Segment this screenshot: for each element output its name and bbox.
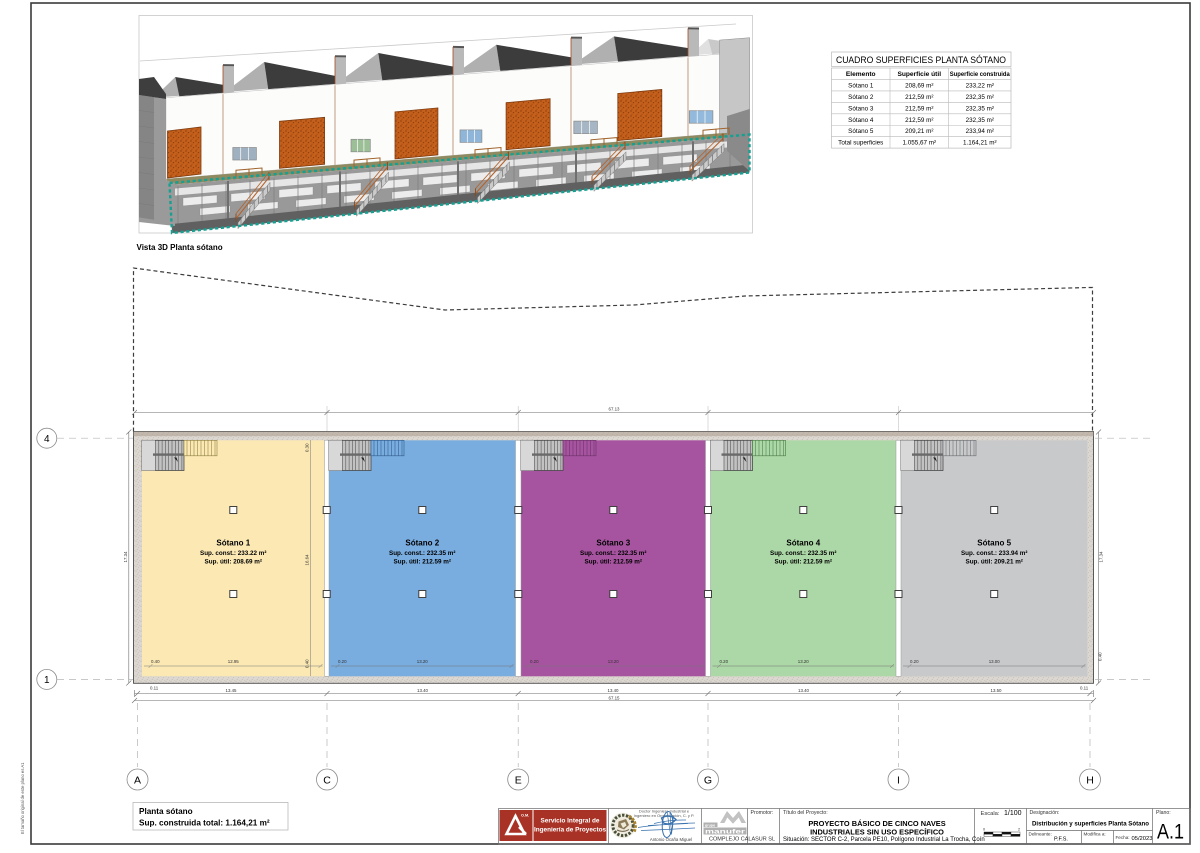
svg-text:Sup. const.: 232.35 m²: Sup. const.: 232.35 m² <box>770 550 837 557</box>
svg-text:Fecha:: Fecha: <box>1116 835 1130 840</box>
svg-text:209,21 m²: 209,21 m² <box>905 128 933 135</box>
svg-text:Sótano 3: Sótano 3 <box>596 539 630 548</box>
svg-text:17.34: 17.34 <box>1099 551 1104 563</box>
svg-text:Sup. const.: 232.35 m²: Sup. const.: 232.35 m² <box>389 550 456 557</box>
svg-text:Sup. útil: 209.21 m²: Sup. útil: 209.21 m² <box>966 558 1023 565</box>
svg-text:O.M.: O.M. <box>521 814 529 818</box>
svg-text:0.40: 0.40 <box>151 659 160 664</box>
svg-text:I: I <box>897 774 900 786</box>
svg-text:13.40: 13.40 <box>798 688 810 693</box>
svg-text:208,69 m²: 208,69 m² <box>905 83 933 90</box>
svg-text:1.164,21 m²: 1.164,21 m² <box>963 140 997 147</box>
svg-text:05/2023: 05/2023 <box>1132 836 1153 842</box>
svg-text:13.40: 13.40 <box>608 688 620 693</box>
svg-text:Plano:: Plano: <box>1156 810 1171 816</box>
svg-text:0.30: 0.30 <box>305 443 310 452</box>
svg-text:Modifica a:: Modifica a: <box>1084 832 1106 837</box>
svg-text:212,59 m²: 212,59 m² <box>905 105 933 112</box>
svg-text:13.00: 13.00 <box>989 659 1001 664</box>
svg-text:0.20: 0.20 <box>338 659 347 664</box>
svg-text:G: G <box>704 774 712 786</box>
svg-text:El tamaño original de este pla: El tamaño original de este plano es A1 <box>20 762 25 834</box>
svg-text:Servicio Integral de: Servicio Integral de <box>541 818 600 825</box>
svg-text:12.95: 12.95 <box>228 659 240 664</box>
svg-text:Sótano 2: Sótano 2 <box>405 539 439 548</box>
svg-text:Sótano 5: Sótano 5 <box>848 128 874 135</box>
svg-text:Sup. útil: 212.59 m²: Sup. útil: 212.59 m² <box>585 558 642 565</box>
svg-text:67.15: 67.15 <box>609 695 621 700</box>
svg-text:Sótano 4: Sótano 4 <box>786 539 820 548</box>
svg-text:4: 4 <box>44 434 50 445</box>
svg-text:Antonio Ocaña Miguel: Antonio Ocaña Miguel <box>650 837 692 842</box>
svg-text:Elemento: Elemento <box>846 71 876 78</box>
svg-text:Sótano 1: Sótano 1 <box>848 83 874 90</box>
svg-text:0: 0 <box>983 828 985 832</box>
svg-text:Sótano 5: Sótano 5 <box>977 539 1011 548</box>
svg-text:Vista 3D Planta sótano: Vista 3D Planta sótano <box>137 243 223 252</box>
svg-text:1.055,67 m²: 1.055,67 m² <box>902 140 936 147</box>
svg-text:Sótano 4: Sótano 4 <box>848 117 874 124</box>
svg-text:Sup. útil: 208.69 m²: Sup. útil: 208.69 m² <box>205 558 262 565</box>
svg-text:Sup. const.: 233.22 m²: Sup. const.: 233.22 m² <box>200 550 267 557</box>
svg-text:13.45: 13.45 <box>226 688 238 693</box>
svg-text:Ingeniería de Proyectos: Ingeniería de Proyectos <box>534 827 607 834</box>
svg-text:Título del Proyecto:: Título del Proyecto: <box>783 810 828 816</box>
svg-text:manufer: manufer <box>705 829 746 836</box>
svg-text:0.11: 0.11 <box>1080 686 1089 691</box>
svg-text:E: E <box>515 774 522 786</box>
svg-text:Sup. const.: 232.35 m²: Sup. const.: 232.35 m² <box>580 550 647 557</box>
svg-text:233,94 m²: 233,94 m² <box>966 128 994 135</box>
svg-text:1/100: 1/100 <box>1004 810 1022 817</box>
svg-text:Sótano 3: Sótano 3 <box>848 105 874 112</box>
svg-text:INDUSTRIALES SIN USO ESPECÍFIC: INDUSTRIALES SIN USO ESPECÍFICO <box>810 828 944 837</box>
svg-text:13.20: 13.20 <box>417 659 429 664</box>
svg-text:Sup. construida total: 1.164,2: Sup. construida total: 1.164,21 m² <box>139 819 270 828</box>
svg-text:13.20: 13.20 <box>608 659 620 664</box>
svg-text:Sup. const.: 233.94 m²: Sup. const.: 233.94 m² <box>961 550 1028 557</box>
svg-text:16.64: 16.64 <box>305 554 310 566</box>
svg-text:0.40: 0.40 <box>1098 652 1103 661</box>
svg-text:P.F.S.: P.F.S. <box>1054 837 1068 843</box>
svg-text:1: 1 <box>44 675 50 686</box>
svg-text:Escala:: Escala: <box>981 811 1000 817</box>
svg-text:Distribución y superficies Pla: Distribución y superficies Planta Sótano <box>1032 821 1149 828</box>
svg-text:A: A <box>134 774 141 786</box>
svg-text:Situación: SECTOR C-2, Parcel: Situación: SECTOR C-2, Parcela PE10, Pol… <box>783 837 985 843</box>
svg-text:232,35 m²: 232,35 m² <box>966 94 994 101</box>
svg-text:232,35 m²: 232,35 m² <box>966 105 994 112</box>
svg-text:233,22 m²: 233,22 m² <box>966 83 994 90</box>
svg-text:Sup. útil: 212.59 m²: Sup. útil: 212.59 m² <box>394 558 451 565</box>
svg-text:Superficie útil: Superficie útil <box>897 71 941 78</box>
svg-text:0.20: 0.20 <box>530 659 539 664</box>
svg-text:212,59 m²: 212,59 m² <box>905 117 933 124</box>
svg-text:17.34: 17.34 <box>123 551 128 563</box>
svg-text:0.40: 0.40 <box>305 659 310 668</box>
svg-text:A.1: A.1 <box>1157 821 1184 844</box>
svg-text:Sup. útil: 212.59 m²: Sup. útil: 212.59 m² <box>775 558 832 565</box>
svg-text:Delineante:: Delineante: <box>1029 832 1052 837</box>
svg-text:13.20: 13.20 <box>798 659 810 664</box>
svg-text:212,59 m²: 212,59 m² <box>905 94 933 101</box>
svg-text:0.20: 0.20 <box>910 659 919 664</box>
svg-text:13.40: 13.40 <box>417 688 429 693</box>
svg-text:C: C <box>323 774 331 786</box>
svg-text:13.50: 13.50 <box>991 688 1003 693</box>
svg-text:232,35 m²: 232,35 m² <box>966 117 994 124</box>
svg-text:Designación:: Designación: <box>1030 810 1060 816</box>
svg-text:Superficie construida: Superficie construida <box>950 71 1010 78</box>
svg-text:0.11: 0.11 <box>150 686 159 691</box>
svg-text:Sótano 1: Sótano 1 <box>216 539 250 548</box>
svg-text:grupo: grupo <box>705 823 716 827</box>
svg-text:Total superficies: Total superficies <box>838 140 883 147</box>
svg-text:COMPLEJO CALASUR SL: COMPLEJO CALASUR SL <box>709 837 775 843</box>
svg-text:2: 2 <box>1018 828 1020 832</box>
svg-text:67.13: 67.13 <box>609 407 621 412</box>
svg-text:Sótano 2: Sótano 2 <box>848 94 874 101</box>
svg-text:H: H <box>1086 774 1094 786</box>
svg-text:Planta sótano: Planta sótano <box>139 807 193 816</box>
svg-text:CUADRO SUPERFICIES PLANTA SÓTA: CUADRO SUPERFICIES PLANTA SÓTANO <box>836 55 1006 65</box>
svg-text:Promotor:: Promotor: <box>751 810 774 816</box>
svg-text:0.20: 0.20 <box>720 659 729 664</box>
